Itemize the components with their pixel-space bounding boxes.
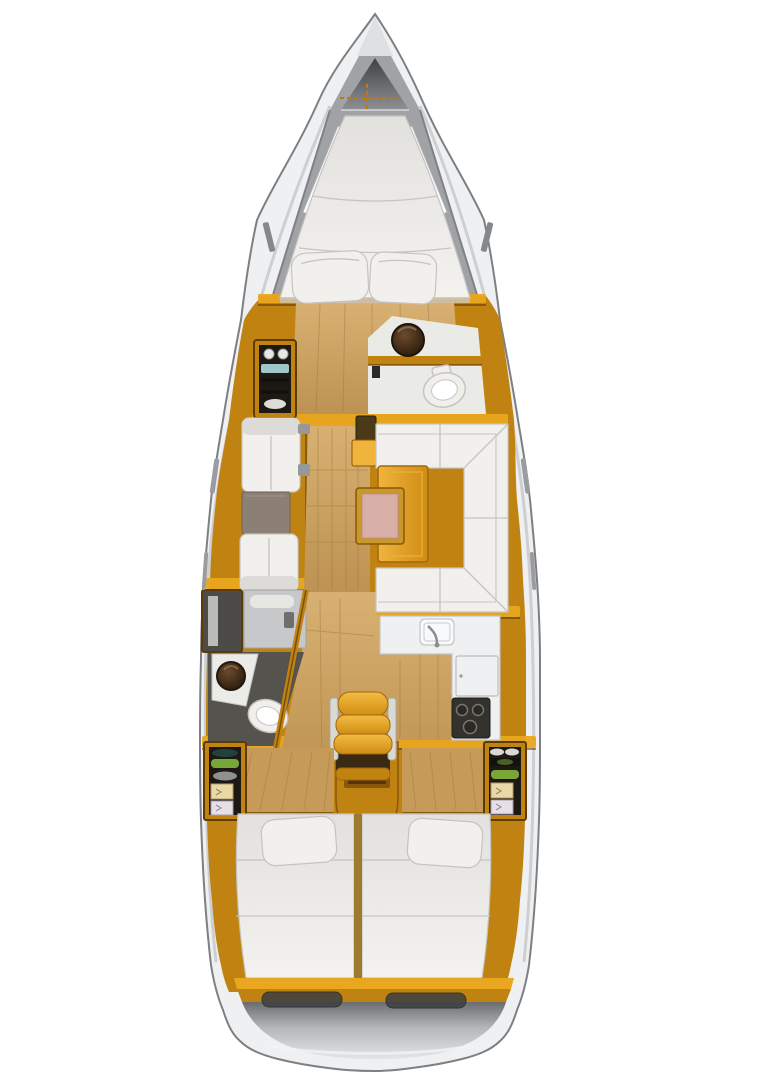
v-berth-pillows [291, 250, 438, 305]
salon-coffee-table [356, 488, 404, 544]
floorplan-svg [0, 0, 762, 1080]
storage-cabinet-starboard [484, 742, 526, 820]
boat-floorplan-figure [0, 0, 762, 1080]
salon-port-table [242, 492, 290, 534]
storage-cabinet-port [204, 742, 246, 820]
forward-head-shelf [368, 356, 482, 365]
mast-step-box [352, 440, 376, 466]
companionway-steps [330, 692, 396, 780]
stern-hatch-starboard [386, 993, 466, 1008]
head-door-handle [372, 366, 380, 378]
port-seat-forward-backrest [242, 418, 300, 435]
stern [234, 978, 514, 1059]
aft-wood-panel-starboard [402, 748, 484, 812]
mast-post [356, 416, 376, 442]
locker-handle-lower [298, 464, 310, 476]
forward-head-sink [392, 324, 424, 356]
fridge-handle [459, 674, 462, 677]
aft-head-locker [202, 590, 242, 652]
bed-divider [354, 814, 362, 978]
forward-shelf-cabinet [254, 340, 296, 418]
stern-bulkhead [234, 978, 514, 989]
galley-stove [452, 698, 490, 738]
locker-handle-upper [298, 424, 310, 434]
stern-hatch-port [262, 992, 342, 1007]
forward-head [368, 316, 486, 414]
